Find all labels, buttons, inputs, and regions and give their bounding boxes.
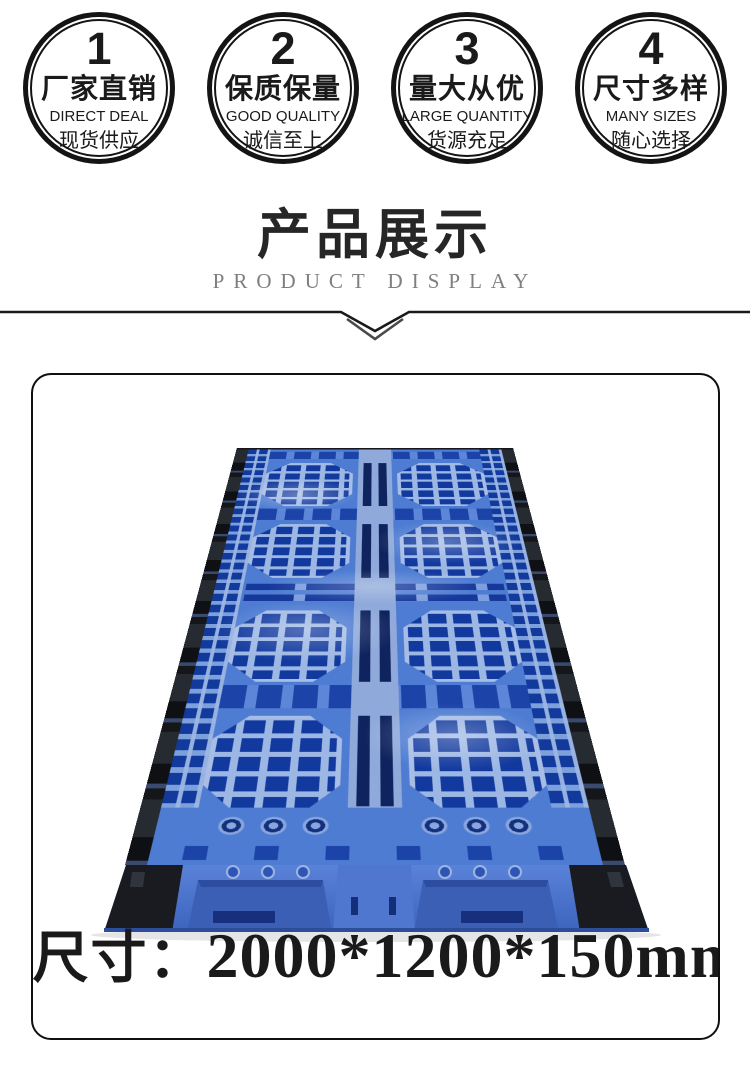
feature-badges-row: 1 厂家直销 DIRECT DEAL 现货供应 2 保质保量 GOOD QUAL… [0,0,750,164]
deck-mesh-panel [259,463,353,506]
badge-subtitle-cn: 货源充足 [427,130,507,152]
badge-subtitle-cn: 现货供应 [59,130,139,152]
badge-inner-ring: 2 保质保量 GOOD QUALITY 诚信至上 [214,19,352,157]
product-size-text: 尺寸：2000*1200*150mm [33,913,718,994]
deck-mesh-panel [403,610,526,681]
size-label: 尺寸： [33,926,207,989]
channel-slot-pair [357,463,393,506]
pallet-top-deck [125,448,625,865]
deck-mesh-panel [245,524,351,578]
badge-number: 1 [86,26,111,71]
channel-slot-pair [352,610,399,681]
channel-slot-pair [355,524,395,578]
badge-subtitle-en: GOOD QUALITY [226,109,340,126]
badge-inner-ring: 4 尺寸多样 MANY SIZES 随心选择 [582,19,720,157]
page-subtitle: PRODUCT DISPLAY [0,269,750,294]
section-title-block: 产品展示 PRODUCT DISPLAY [0,204,750,294]
deck-mesh-panel [399,524,505,578]
badge-title: 尺寸多样 [593,74,709,105]
page-title: 产品展示 [0,204,750,266]
badge-number: 4 [638,26,663,71]
badge-title: 量大从优 [409,74,525,105]
feature-badge-4: 4 尺寸多样 MANY SIZES 随心选择 [575,12,727,164]
feature-badge-2: 2 保质保量 GOOD QUALITY 诚信至上 [207,12,359,164]
deck-mesh-panel [397,463,491,506]
badge-inner-ring: 3 量大从优 LARGE QUANTITY 货源充足 [398,19,536,157]
badge-subtitle-en: LARGE QUANTITY [402,109,533,126]
deck-mesh-panel [224,610,347,681]
badge-title: 厂家直销 [41,74,157,105]
feature-badge-3: 3 量大从优 LARGE QUANTITY 货源充足 [391,12,543,164]
channel-slot-pair [348,716,402,807]
deck-mesh-panel [407,716,553,813]
size-value: 2000*1200*150mm [207,920,720,991]
badge-number: 2 [270,26,295,71]
divider-chevron-down [0,302,750,348]
badge-title: 保质保量 [225,74,341,105]
badge-subtitle-en: MANY SIZES [606,109,697,126]
feature-badge-1: 1 厂家直销 DIRECT DEAL 现货供应 [23,12,175,164]
badge-subtitle-cn: 随心选择 [611,130,691,152]
badge-subtitle-cn: 诚信至上 [243,130,323,152]
badge-inner-ring: 1 厂家直销 DIRECT DEAL 现货供应 [30,19,168,157]
product-display-panel: 尺寸：2000*1200*150mm [31,373,720,1040]
deck-mesh-panel [198,716,344,813]
page: 1 厂家直销 DIRECT DEAL 现货供应 2 保质保量 GOOD QUAL… [0,0,750,1040]
deck-front-apron [147,808,603,865]
badge-number: 3 [454,26,479,71]
pallet-deck-surface [147,450,603,865]
badge-subtitle-en: DIRECT DEAL [50,109,149,126]
